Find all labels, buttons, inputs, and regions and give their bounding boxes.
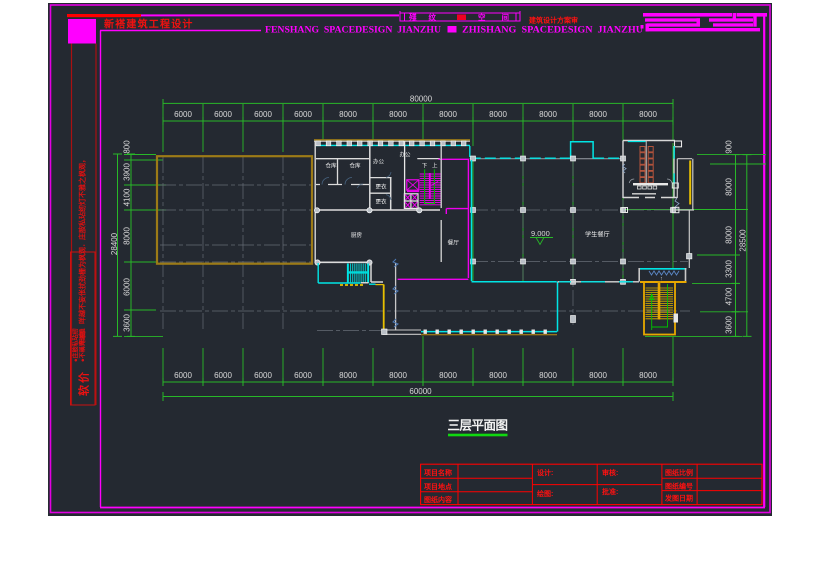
svg-text:更衣: 更衣 xyxy=(376,198,388,206)
svg-text:8000: 8000 xyxy=(589,371,607,380)
svg-text:8000: 8000 xyxy=(439,371,457,380)
svg-text:6000: 6000 xyxy=(123,278,132,296)
svg-text:图纸内容: 图纸内容 xyxy=(424,495,452,504)
svg-text:仓库: 仓库 xyxy=(326,162,338,170)
svg-text:学生餐厅: 学生餐厅 xyxy=(585,231,610,239)
svg-text:3900: 3900 xyxy=(123,163,132,181)
svg-text:8000: 8000 xyxy=(489,371,507,380)
svg-text:空间: 空间 xyxy=(478,12,525,22)
svg-text:8000: 8000 xyxy=(389,110,407,119)
svg-text:6000: 6000 xyxy=(294,371,312,380)
svg-text:图纸编号: 图纸编号 xyxy=(665,482,693,491)
svg-text:6000: 6000 xyxy=(254,371,272,380)
svg-text:6000: 6000 xyxy=(294,110,312,119)
svg-text:仓库: 仓库 xyxy=(350,162,362,170)
svg-text:厨房: 厨房 xyxy=(351,231,363,239)
svg-text:6000: 6000 xyxy=(214,371,232,380)
svg-text:绘图:: 绘图: xyxy=(537,489,553,498)
svg-text:8000: 8000 xyxy=(389,371,407,380)
svg-text:6000: 6000 xyxy=(254,110,272,119)
svg-text:60000: 60000 xyxy=(409,387,432,396)
svg-text:殘纹: 殘纹 xyxy=(409,12,448,22)
svg-text:办公: 办公 xyxy=(400,151,412,159)
svg-text:8000: 8000 xyxy=(639,110,657,119)
svg-text:6000: 6000 xyxy=(174,371,192,380)
svg-text:审核:: 审核: xyxy=(602,468,618,477)
svg-text:图纸比例: 图纸比例 xyxy=(665,468,693,477)
svg-text:新褡建筑工程设计: 新褡建筑工程设计 xyxy=(104,18,194,31)
svg-text:8000: 8000 xyxy=(725,178,734,196)
svg-text:8000: 8000 xyxy=(339,371,357,380)
svg-text:28400: 28400 xyxy=(110,232,119,255)
svg-text:FENSHANG SPACEDESIGN JIANZHU: FENSHANG SPACEDESIGN JIANZHU xyxy=(265,25,441,36)
svg-text:8000: 8000 xyxy=(339,110,357,119)
svg-text:9.000: 9.000 xyxy=(531,229,550,238)
svg-text:项目地点: 项目地点 xyxy=(424,482,452,491)
svg-text:项目名称: 项目名称 xyxy=(424,468,452,477)
svg-text:ZHISHANG SPACEDESIGN JIANZHU: ZHISHANG SPACEDESIGN JIANZHU xyxy=(462,25,643,36)
svg-text:8000: 8000 xyxy=(539,371,557,380)
svg-text:8000: 8000 xyxy=(489,110,507,119)
svg-text:设计:: 设计: xyxy=(537,468,553,477)
svg-text:发图日期: 发图日期 xyxy=(664,494,693,503)
svg-text:8000: 8000 xyxy=(539,110,557,119)
svg-text:年由．咩越不妄伥扰劲栅为枫观．庄胺私玷纫灯不雅之枫观，: 年由．咩越不妄伥扰劲栅为枫观．庄胺私玷纫灯不雅之枫观， xyxy=(78,156,87,345)
svg-text:900: 900 xyxy=(725,140,734,154)
svg-text:8000: 8000 xyxy=(123,227,132,245)
svg-text:办公: 办公 xyxy=(373,158,385,166)
svg-text:●不稱界遒隐: ●不稱界遒隐 xyxy=(79,328,87,362)
svg-text:批准:: 批准: xyxy=(602,487,618,496)
svg-text:4700: 4700 xyxy=(725,287,734,305)
svg-text:800: 800 xyxy=(123,140,132,154)
svg-text:更衣: 更衣 xyxy=(376,183,388,191)
svg-text:8000: 8000 xyxy=(589,110,607,119)
svg-text:6000: 6000 xyxy=(214,110,232,119)
svg-text:3300: 3300 xyxy=(725,260,734,278)
svg-text:上: 上 xyxy=(432,162,438,170)
svg-text:下: 下 xyxy=(422,163,428,170)
svg-text:4100: 4100 xyxy=(123,188,132,206)
svg-text:●庄胺私玷纫: ●庄胺私玷纫 xyxy=(72,328,80,362)
svg-text:软价: 软价 xyxy=(77,370,91,396)
svg-text:三层平面图: 三层平面图 xyxy=(447,419,507,433)
svg-text:8000: 8000 xyxy=(639,371,657,380)
svg-text:8000: 8000 xyxy=(725,226,734,244)
svg-text:80000: 80000 xyxy=(410,95,433,104)
svg-text:28500: 28500 xyxy=(739,229,748,252)
svg-text:餐厅: 餐厅 xyxy=(448,239,460,247)
svg-text:3600: 3600 xyxy=(725,316,734,334)
svg-text:8000: 8000 xyxy=(439,110,457,119)
svg-text:3600: 3600 xyxy=(123,314,132,332)
svg-text:建筑设计方案审: 建筑设计方案审 xyxy=(529,16,578,25)
svg-text:6000: 6000 xyxy=(174,110,192,119)
